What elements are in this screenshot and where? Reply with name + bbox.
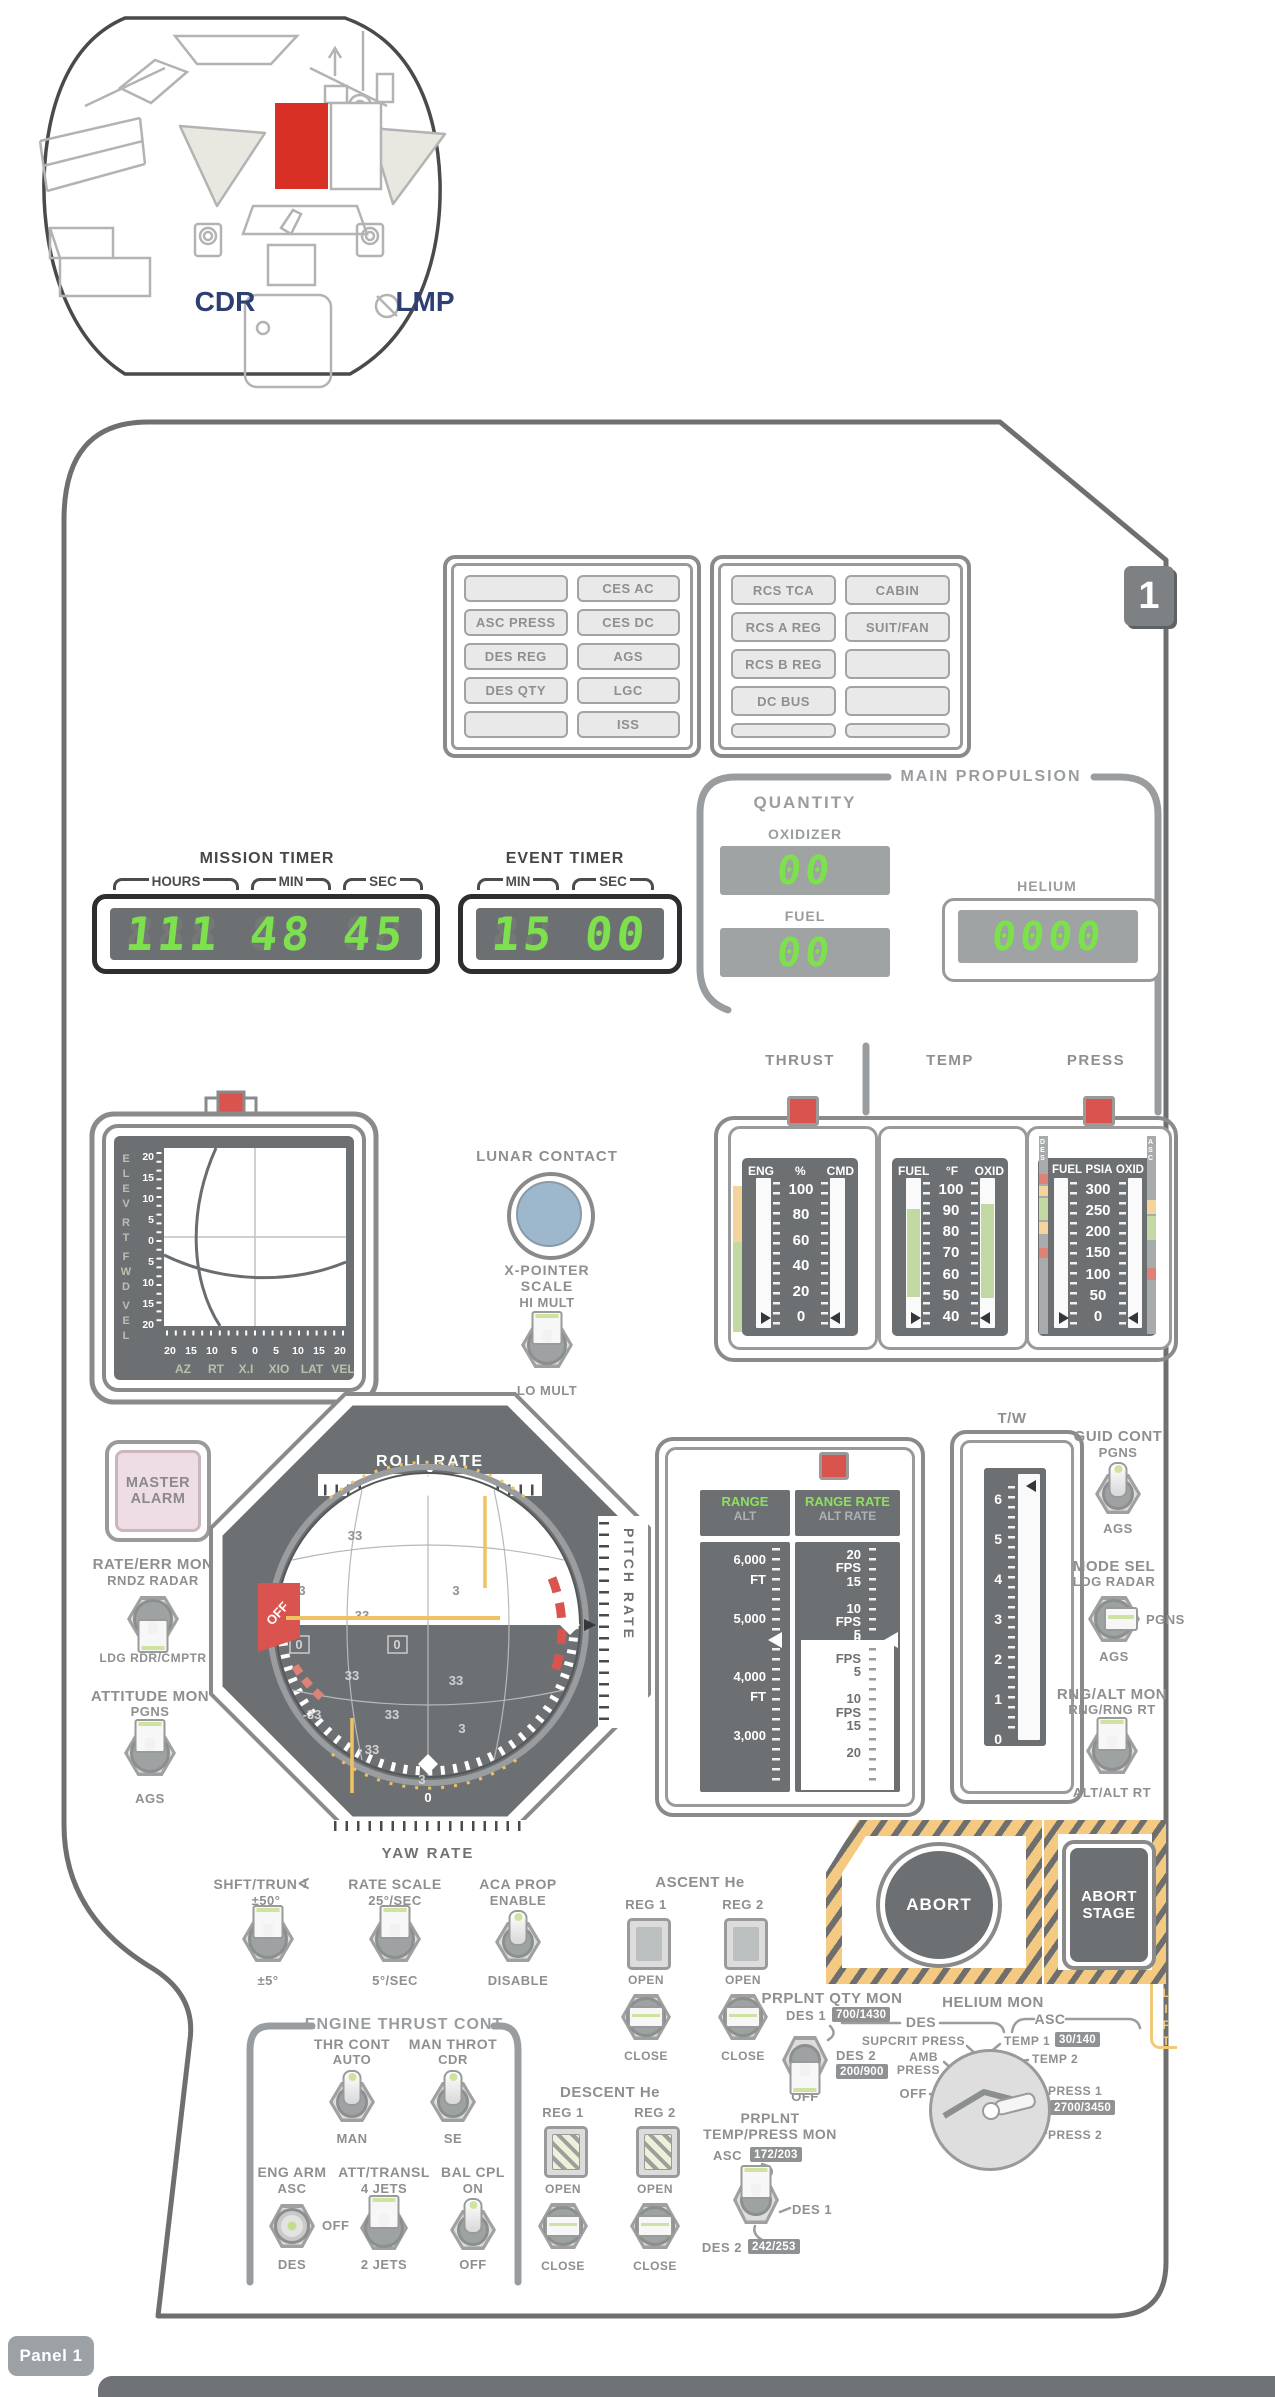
svg-text:E: E — [122, 1315, 129, 1327]
svg-text:3: 3 — [458, 1721, 465, 1736]
svg-text:15: 15 — [142, 1298, 154, 1310]
svg-text:20: 20 — [334, 1345, 346, 1357]
attitude-mon-title: ATTITUDE MON — [91, 1688, 209, 1705]
thrust-cmd-tape — [830, 1178, 845, 1328]
rate-err-mon-up-label: RNDZ RADAR — [107, 1574, 199, 1589]
svg-text:10: 10 — [142, 1193, 154, 1205]
master-alarm-button[interactable]: MASTER ALARM — [105, 1440, 211, 1542]
footer-panel-text: Panel 1 — [19, 2346, 82, 2366]
helium-temp1-badge: 30/140 — [1055, 2032, 1100, 2047]
eng-arm-mid-label: OFF — [322, 2218, 350, 2233]
master-alarm-line1: MASTER — [126, 1475, 190, 1491]
descent-reg1-label: REG 1 — [542, 2106, 584, 2121]
att-transl-switch[interactable] — [360, 2206, 408, 2250]
rotary-center — [982, 2102, 1000, 2120]
cdr-label: CDR — [195, 286, 256, 317]
svg-text:0: 0 — [252, 1345, 258, 1357]
helium-asc-label: ASC — [1034, 2011, 1065, 2027]
svg-text:LAT: LAT — [301, 1362, 324, 1376]
temp-oxid-green-band — [981, 1204, 994, 1298]
helium-press2-label: PRESS 2 — [1048, 2128, 1102, 2142]
ascent-reg1-switch[interactable] — [621, 1994, 671, 2040]
temp-oxid-pointer — [980, 1312, 990, 1324]
press-oxid-pointer — [1128, 1312, 1138, 1324]
fuel-display: 8800 — [720, 928, 890, 977]
aca-prop-switch[interactable] — [495, 1922, 541, 1962]
svg-text:RT: RT — [208, 1362, 225, 1376]
ascent-reg2-talkback — [724, 1918, 768, 1970]
mission-hours: 888111 — [124, 911, 224, 957]
guid-cont-title: GUID CONT — [1074, 1428, 1163, 1445]
footer-panel-label: Panel 1 — [8, 2336, 94, 2376]
svg-text:F: F — [123, 1251, 130, 1263]
temp-title: TEMP — [926, 1052, 974, 1069]
thr-cont-down-label: MAN — [336, 2132, 367, 2147]
temp-mon-des2-badge: 242/253 — [748, 2239, 800, 2254]
descent-he-title: DESCENT He — [560, 2084, 660, 2101]
tw-pointer — [1026, 1480, 1036, 1492]
svg-text:D: D — [122, 1281, 130, 1293]
svg-text:33: 33 — [348, 1528, 362, 1543]
range-tape-values: 6,000 FT 5,000 4,000 FT 3,000 — [700, 1550, 766, 1745]
x-pointer-display: EL EV RT FW DV EL 2015 105 05 1015 20 20… — [88, 1090, 380, 1408]
yaw-rate-label: YAW RATE — [382, 1845, 475, 1862]
alt-label: ALT — [700, 1509, 790, 1523]
rate-scale-title: RATE SCALE — [348, 1876, 441, 1892]
ascent-reg2-open-label: OPEN — [725, 1974, 761, 1988]
lunar-contact-label: LUNAR CONTACT — [476, 1148, 618, 1165]
yaw-zero: 0 — [424, 1790, 431, 1805]
oxidizer-label: OXIDIZER — [768, 826, 842, 842]
prplnt-temp-mon-title1: PRPLNT — [741, 2110, 800, 2126]
angle-icon: ∢ — [297, 1876, 310, 1893]
bal-cpl-down-label: OFF — [459, 2258, 487, 2273]
rate-err-mon-switch[interactable] — [127, 1596, 179, 1642]
prplnt-qty-mon-title: PRPLNT QTY MON — [762, 1990, 903, 2007]
helium-press1-label: PRESS 1 — [1048, 2084, 1102, 2098]
quantity-title: QUANTITY — [754, 793, 857, 813]
fuel-label: FUEL — [785, 908, 826, 924]
eng-arm-title: ENG ARM — [257, 2164, 326, 2180]
man-throt-down-label: SE — [444, 2132, 462, 2147]
svg-text:10: 10 — [206, 1345, 218, 1357]
svg-text:X.I: X.I — [239, 1362, 254, 1376]
pitch-rate-label: PITCH RATE — [621, 1528, 637, 1641]
aca-prop-title: ACA PROP — [479, 1876, 556, 1892]
helium-supcrit-label: SUPCRIT PRESS — [862, 2034, 965, 2048]
tw-scale: 6 5 4 3 2 1 0 — [988, 1479, 1002, 1759]
rng-alt-mon-up-label: RNG/RNG RT — [1068, 1703, 1155, 1718]
descent-reg1-open-label: OPEN — [545, 2183, 581, 2197]
svg-text:0: 0 — [295, 1637, 302, 1652]
pitch-zero: 0 — [571, 1618, 578, 1633]
svg-text:3: 3 — [452, 1583, 459, 1598]
thr-cont-switch[interactable] — [329, 2082, 375, 2122]
range-rate-label: RANGE RATE — [795, 1494, 900, 1509]
descent-reg2-close-label: CLOSE — [633, 2260, 677, 2274]
man-throt-up-label: CDR — [438, 2053, 468, 2068]
svg-text:5: 5 — [231, 1345, 237, 1357]
svg-text:W: W — [121, 1266, 132, 1278]
press-oxid-tape — [1128, 1178, 1142, 1328]
master-alarm-line2: ALARM — [131, 1491, 186, 1507]
svg-text:3: 3 — [418, 1772, 425, 1787]
lift-handle[interactable]: LIFT — [1150, 1984, 1177, 2049]
temp-fuel-green-band — [907, 1209, 920, 1297]
descent-reg2-talkback — [636, 2126, 680, 2178]
svg-text:33: 33 — [385, 1707, 399, 1722]
prplnt-qty-mon-switch[interactable] — [782, 2036, 828, 2084]
svg-text:15: 15 — [313, 1345, 325, 1357]
svg-text:E: E — [122, 1183, 129, 1195]
attitude-mon-down-label: AGS — [135, 1792, 165, 1807]
svg-text:33: 33 — [449, 1673, 463, 1688]
rate-err-mon-down-label: LDG RDR/CMPTR — [99, 1652, 206, 1666]
svg-text:R: R — [122, 1217, 130, 1229]
eng-arm-up-label: ASC — [278, 2182, 307, 2197]
mission-timer-display: 888111 8848 8845 — [92, 894, 440, 974]
guid-cont-switch[interactable] — [1095, 1474, 1141, 1514]
svg-text:33: 33 — [345, 1668, 359, 1683]
oxidizer-display: 8800 — [720, 846, 890, 895]
thrust-header: ENG%CMD — [748, 1164, 854, 1178]
cabin-outline — [44, 18, 440, 374]
svg-text:0: 0 — [393, 1637, 400, 1652]
attitude-mon-switch[interactable] — [124, 1730, 176, 1776]
qty-des1-badge: 700/1430 — [832, 2007, 890, 2022]
svg-text:VEL: VEL — [331, 1362, 354, 1376]
bal-cpl-switch[interactable] — [450, 2210, 496, 2250]
helium-display-frame: 88880000 — [942, 898, 1161, 982]
press-fuel-tape — [1054, 1178, 1068, 1328]
range-rate-zero: 0 — [795, 1630, 861, 1645]
helium-press1-badge: 2700/3450 — [1050, 2100, 1115, 2115]
descent-reg1-close-label: CLOSE — [541, 2260, 585, 2274]
svg-text:L: L — [123, 1168, 130, 1180]
event-min-bracket: MIN — [477, 874, 559, 889]
helium-temp1-label: TEMP 1 — [1004, 2034, 1050, 2048]
press-header: FUELPSIAOXID — [1052, 1164, 1144, 1176]
mission-sec: 8845 — [340, 911, 408, 957]
qty-des1-label: DES 1 — [786, 2008, 826, 2023]
mode-sel-title: MODE SEL — [1073, 1558, 1155, 1575]
abort-button[interactable]: ABORT — [876, 1842, 1002, 1968]
att-transl-down-label: 2 JETS — [361, 2258, 407, 2273]
rate-scale-switch[interactable] — [369, 1916, 421, 1962]
thrust-warning-lamp — [787, 1096, 819, 1126]
svg-text:L: L — [123, 1330, 130, 1342]
main-propulsion-title: MAIN PROPULSION — [900, 768, 1081, 786]
ascent-reg2-switch[interactable] — [718, 1994, 768, 2040]
press-asc-strip: ASC — [1147, 1136, 1156, 1334]
descent-reg2-switch[interactable] — [630, 2203, 680, 2249]
panel-number: 1 — [1138, 575, 1159, 618]
rng-alt-mon-down-label: ALT/ALT RT — [1073, 1786, 1151, 1801]
range-rate-header: RANGE RATE ALT RATE — [795, 1490, 900, 1536]
abort-button-label: ABORT — [906, 1895, 971, 1915]
range-header: RANGE ALT — [700, 1490, 790, 1536]
svg-text:V: V — [122, 1300, 130, 1312]
ascent-reg1-close-label: CLOSE — [624, 2050, 668, 2064]
temp-mon-asc-badge: 172/203 — [750, 2147, 802, 2162]
shft-trun-title: SHFT/TRUN∢ — [214, 1876, 311, 1893]
eng-arm-switch[interactable] — [269, 2204, 315, 2248]
eng-arm-down-label: DES — [278, 2258, 306, 2273]
svg-text:5: 5 — [148, 1256, 154, 1268]
attitude-mon-up-label: PGNS — [131, 1705, 170, 1720]
aca-prop-up-label: ENABLE — [490, 1894, 546, 1909]
min-bracket: MIN — [251, 874, 331, 889]
range-rate-lower-values: FPS 5 10 FPS 15 20 — [795, 1652, 861, 1759]
thrust-band-orange — [733, 1186, 742, 1242]
mission-timer-title: MISSION TIMER — [200, 850, 335, 868]
range-label: RANGE — [700, 1494, 790, 1509]
svg-text:5: 5 — [148, 1214, 154, 1226]
event-timer-display: 8815 8800 — [458, 894, 682, 974]
shft-trun-switch[interactable] — [242, 1916, 294, 1962]
temp-fuel-pointer — [911, 1312, 921, 1324]
thrust-cmd-pointer — [830, 1312, 840, 1324]
range-rate-upper-values: 20 FPS 15 10 FPS 5 — [795, 1548, 861, 1642]
helium-mon-title: HELIUM MON — [942, 1994, 1044, 2011]
range-pointer — [768, 1632, 782, 1648]
event-timer-title: EVENT TIMER — [506, 850, 625, 868]
qty-des2-badge: 200/900 — [836, 2064, 888, 2079]
ascent-reg1-talkback — [627, 1918, 671, 1970]
xpointer-scale-title1: X-POINTER — [504, 1262, 589, 1278]
cabin-diagram: CDR LMP — [25, 6, 455, 396]
man-throt-switch[interactable] — [430, 2082, 476, 2122]
svg-text:E: E — [122, 1153, 129, 1165]
temp-scale: 100908070605040 — [931, 1182, 971, 1324]
thr-cont-title: THR CONT — [314, 2036, 390, 2052]
sec-bracket: SEC — [343, 874, 423, 889]
svg-text:XIO: XIO — [269, 1362, 290, 1376]
tw-tape — [1018, 1474, 1040, 1740]
event-sec-bracket: SEC — [572, 874, 654, 889]
mode-sel-right-label: PGNS — [1146, 1612, 1185, 1627]
shft-trun-down-label: ±5° — [257, 1974, 278, 1989]
qty-des2-label: DES 2 — [836, 2048, 876, 2063]
bal-cpl-up-label: ON — [463, 2182, 484, 2197]
svg-text:T: T — [123, 1232, 130, 1244]
guid-cont-up-label: PGNS — [1099, 1446, 1138, 1461]
ascent-reg2-label: REG 2 — [722, 1898, 764, 1913]
svg-text:10: 10 — [142, 1277, 154, 1289]
lmp-label: LMP — [395, 286, 454, 317]
thrust-band-green — [733, 1242, 742, 1332]
temp-mon-des2-label: DES 2 — [702, 2240, 742, 2255]
svg-text:20: 20 — [142, 1319, 154, 1331]
svg-text:33: 33 — [365, 1742, 379, 1757]
descent-reg1-switch[interactable] — [538, 2203, 588, 2249]
next-panel-edge — [98, 2376, 1275, 2397]
lift-label: LIFT — [1159, 1986, 1173, 2050]
press-fuel-pointer — [1059, 1312, 1069, 1324]
prplnt-temp-mon-title2: TEMP/PRESS MON — [703, 2126, 837, 2142]
svg-text:0: 0 — [148, 1235, 154, 1247]
descent-reg2-label: REG 2 — [634, 2106, 676, 2121]
helium-off-label: OFF — [900, 2086, 928, 2101]
descent-reg2-open-label: OPEN — [637, 2183, 673, 2197]
svg-text:33: 33 — [355, 1608, 369, 1623]
abort-stage-button[interactable]: ABORT STAGE — [1062, 1840, 1156, 1970]
thrust-scale: 100806040200 — [781, 1182, 821, 1324]
abort-stage-line2: STAGE — [1082, 1905, 1135, 1922]
guid-cont-down-label: AGS — [1103, 1522, 1133, 1537]
xpointer-scale-up-label: HI MULT — [519, 1296, 574, 1311]
svg-text:5: 5 — [273, 1345, 279, 1357]
aca-prop-down-label: DISABLE — [488, 1974, 549, 1989]
cw-right-lights: RCS TCACABINRCS A REGSUIT/FANRCS B REGDC… — [731, 575, 950, 738]
rng-alt-mon-switch[interactable] — [1086, 1728, 1138, 1774]
ascent-he-title: ASCENT He — [655, 1874, 745, 1891]
mode-sel-switch[interactable] — [1088, 1596, 1140, 1642]
engine-thrust-cont-title: ENGINE THRUST CONT — [305, 2016, 503, 2034]
prplnt-temp-mon-switch[interactable] — [733, 2176, 779, 2224]
ascent-reg1-open-label: OPEN — [628, 1974, 664, 1988]
thr-cont-up-label: AUTO — [333, 2053, 372, 2068]
cw-left-lights: CES ACASC PRESSCES DCDES REGAGSDES QTYLG… — [464, 575, 680, 738]
mode-sel-down-label: AGS — [1099, 1650, 1129, 1665]
helium-mon-rotary[interactable] — [929, 2049, 1051, 2171]
helium-des-label: DES — [906, 2014, 936, 2030]
svg-text:20: 20 — [142, 1151, 154, 1163]
mission-min: 8848 — [248, 911, 316, 957]
ascent-reg1-label: REG 1 — [625, 1898, 667, 1913]
event-min: 8815 — [490, 911, 558, 957]
press-scale: 300250200150100500 — [1078, 1182, 1118, 1324]
mode-sel-up-label: LDG RADAR — [1073, 1575, 1156, 1590]
thrust-eng-tape — [756, 1178, 771, 1328]
ascent-reg2-close-label: CLOSE — [721, 2050, 765, 2064]
cw-panel-left: CES ACASC PRESSCES DCDES REGAGSDES QTYLG… — [443, 555, 701, 758]
descent-reg1-talkback — [544, 2126, 588, 2178]
cw-panel-right: RCS TCACABINRCS A REGSUIT/FANRCS B REGDC… — [710, 555, 971, 758]
xpointer-scale-switch[interactable] — [521, 1322, 573, 1368]
man-throt-title: MAN THROT — [409, 2036, 498, 2052]
panel1-highlight — [275, 103, 328, 189]
svg-text:V: V — [122, 1198, 130, 1210]
xpointer-scale-title2: SCALE — [521, 1278, 573, 1294]
panel-number-badge: 1 — [1124, 566, 1174, 626]
svg-text:15: 15 — [142, 1172, 154, 1184]
thrust-title: THRUST — [765, 1052, 835, 1069]
event-sec: 8800 — [582, 911, 650, 957]
range-rate-pointer — [884, 1632, 898, 1648]
bal-cpl-title: BAL CPL — [441, 2164, 505, 2180]
att-transl-title: ATT/TRANSL — [338, 2164, 430, 2180]
svg-text:-33: -33 — [303, 1707, 322, 1722]
panel2-area — [331, 103, 381, 189]
abort-stage-line1: ABORT — [1081, 1888, 1137, 1905]
fdai: ROLL RATE 0 33 3 3 33 0 0 33 33 -33 33 3… — [200, 1388, 655, 1893]
lunar-contact-lamp — [507, 1172, 595, 1260]
svg-text:10: 10 — [292, 1345, 304, 1357]
thrust-eng-pointer — [761, 1312, 771, 1324]
press-des-strip: DES — [1039, 1136, 1048, 1334]
alt-rate-label: ALT RATE — [795, 1509, 900, 1523]
press-warning-lamp — [1083, 1096, 1115, 1126]
helium-label: HELIUM — [1017, 878, 1077, 894]
tw-title: T/W — [998, 1410, 1027, 1427]
rate-err-mon-title: RATE/ERR MON — [93, 1556, 214, 1573]
svg-text:AZ: AZ — [175, 1362, 191, 1376]
rate-scale-down-label: 5°/SEC — [372, 1974, 418, 1989]
press-title: PRESS — [1067, 1052, 1125, 1069]
svg-text:20: 20 — [164, 1345, 176, 1357]
rng-alt-mon-title: RNG/ALT MON — [1057, 1686, 1167, 1703]
temp-mon-asc-label: ASC — [713, 2148, 742, 2163]
xpointer-h-scale: 2015 105 05 1015 20 — [164, 1345, 346, 1357]
svg-text:15: 15 — [185, 1345, 197, 1357]
temp-mon-des1-label: DES 1 — [792, 2202, 832, 2217]
temp-header: FUEL°FOXID — [898, 1164, 1004, 1178]
range-warning-lamp — [819, 1452, 849, 1480]
hours-bracket: HOURS — [113, 874, 239, 889]
